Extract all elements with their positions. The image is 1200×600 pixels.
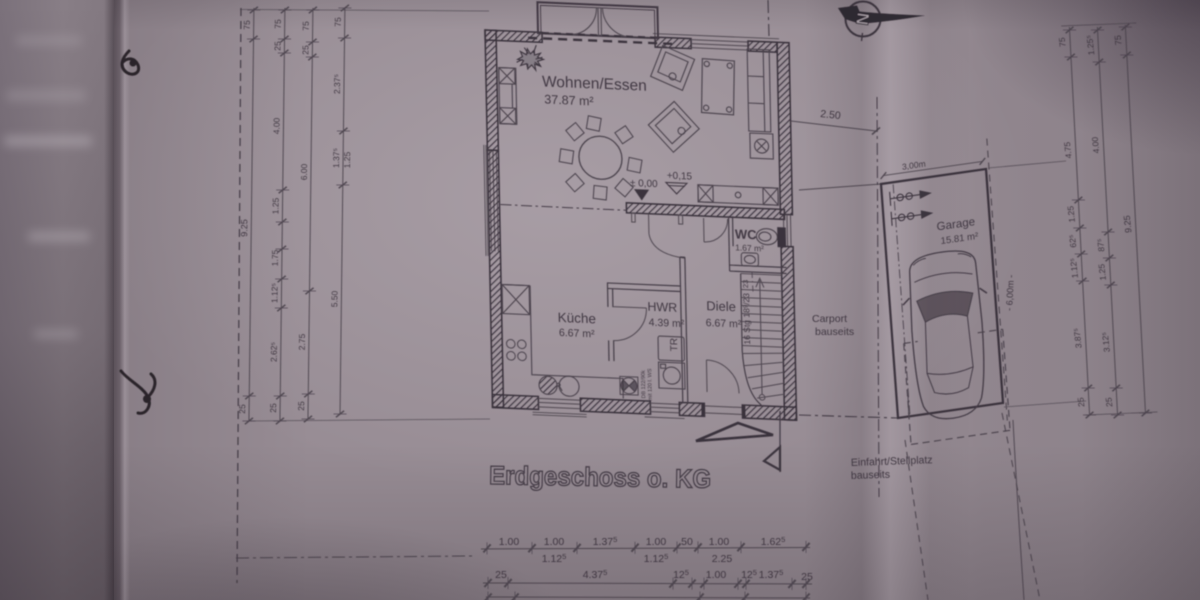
- svg-text:1.67 m²: 1.67 m²: [735, 242, 764, 253]
- svg-text:Küche: Küche: [558, 310, 597, 327]
- svg-text:Garage: Garage: [936, 216, 975, 233]
- svg-text:4.00: 4.00: [1090, 136, 1102, 153]
- svg-text:25: 25: [1075, 397, 1086, 407]
- svg-text:25: 25: [300, 45, 310, 55]
- svg-text:1.375: 1.375: [759, 568, 784, 581]
- svg-text:1.125: 1.125: [644, 552, 669, 565]
- svg-text:25: 25: [237, 404, 247, 414]
- svg-text:87⁵: 87⁵: [1095, 238, 1106, 251]
- svg-text:1.25: 1.25: [1065, 205, 1077, 222]
- svg-text:WC: WC: [735, 226, 758, 242]
- svg-text:25: 25: [495, 569, 507, 581]
- svg-text:1.75: 1.75: [270, 249, 280, 266]
- svg-text:Wohnen/Essen: Wohnen/Essen: [542, 73, 647, 94]
- svg-text:1.12⁵: 1.12⁵: [269, 283, 279, 303]
- svg-text:mit 120 l. WS: mit 120 l. WS: [647, 368, 654, 401]
- svg-text:bauseits: bauseits: [851, 469, 891, 482]
- svg-text:3.87⁵: 3.87⁵: [1072, 328, 1084, 349]
- svg-text:1.37⁵: 1.37⁵: [331, 148, 341, 168]
- svg-text:Erdgeschoss o. KG: Erdgeschoss o. KG: [489, 460, 711, 494]
- svg-text:75: 75: [273, 19, 283, 29]
- svg-text:Diele: Diele: [706, 298, 736, 314]
- svg-text:1.00: 1.00: [709, 536, 730, 548]
- svg-text:75: 75: [1113, 35, 1124, 46]
- svg-text:62⁵: 62⁵: [1067, 234, 1078, 247]
- svg-text:1.00: 1.00: [646, 536, 667, 548]
- svg-text:1.00: 1.00: [544, 536, 565, 548]
- svg-text:25: 25: [268, 403, 278, 413]
- svg-text:+0,15: +0,15: [667, 171, 693, 183]
- svg-text:4.375: 4.375: [583, 568, 608, 581]
- svg-text:DB 122/90k: DB 122/90k: [641, 370, 648, 399]
- svg-text:2.75: 2.75: [297, 333, 307, 350]
- svg-text:Einfahrt/Stellplatz: Einfahrt/Stellplatz: [851, 454, 933, 469]
- svg-text:TR: TR: [669, 338, 680, 352]
- svg-text:125: 125: [673, 568, 689, 581]
- svg-text:23: 23: [741, 280, 750, 288]
- svg-text:15.81 m²: 15.81 m²: [940, 231, 978, 247]
- svg-text:75: 75: [242, 20, 252, 30]
- svg-text:1.25: 1.25: [342, 151, 352, 168]
- svg-text:5.50: 5.50: [329, 290, 339, 307]
- svg-text:- 6,00m -: - 6,00m -: [1004, 275, 1016, 311]
- svg-text:1.625: 1.625: [761, 535, 786, 548]
- svg-text:75: 75: [301, 21, 311, 31]
- svg-text:bauseits: bauseits: [815, 326, 854, 338]
- svg-text:6.67 m²: 6.67 m²: [559, 327, 595, 341]
- svg-text:25: 25: [801, 571, 813, 583]
- svg-text:6.00: 6.00: [299, 163, 309, 180]
- svg-text:2.37⁵: 2.37⁵: [332, 74, 342, 94]
- svg-text:1.25⁵: 1.25⁵: [1084, 35, 1096, 56]
- svg-text:25: 25: [272, 41, 282, 51]
- svg-text:1.12⁵: 1.12⁵: [1068, 258, 1080, 279]
- svg-text:4.75: 4.75: [1062, 141, 1074, 158]
- svg-text:9.25: 9.25: [239, 219, 249, 237]
- svg-text:Carport: Carport: [812, 313, 847, 325]
- svg-text:N: N: [853, 12, 874, 27]
- svg-text:1.00: 1.00: [706, 569, 727, 581]
- svg-text:1.125: 1.125: [542, 552, 567, 565]
- svg-text:6.67 m²: 6.67 m²: [706, 317, 742, 331]
- svg-text:1.25: 1.25: [1096, 263, 1108, 280]
- svg-text:± 0,00: ± 0,00: [630, 178, 658, 190]
- svg-text:3.12⁵: 3.12⁵: [1100, 332, 1112, 353]
- svg-text:4.39 m²: 4.39 m²: [649, 317, 685, 331]
- svg-text:4.00: 4.00: [271, 117, 281, 134]
- svg-text:37.87 m²: 37.87 m²: [544, 92, 594, 108]
- svg-text:50: 50: [681, 536, 693, 548]
- svg-text:25: 25: [1103, 397, 1114, 407]
- svg-text:75: 75: [333, 17, 343, 27]
- svg-text:25: 25: [296, 401, 306, 411]
- svg-text:16 Stg 189/23: 16 Stg 189/23: [741, 293, 752, 345]
- svg-text:HWR: HWR: [647, 300, 677, 315]
- svg-text:125: 125: [741, 568, 757, 581]
- svg-text:1.375: 1.375: [593, 535, 618, 548]
- svg-text:2.50: 2.50: [820, 108, 842, 122]
- svg-text:1.25: 1.25: [270, 197, 280, 214]
- svg-text:2.25: 2.25: [712, 553, 733, 565]
- svg-text:75: 75: [1057, 37, 1068, 47]
- svg-text:2.62⁵: 2.62⁵: [269, 342, 279, 362]
- svg-text:9.25: 9.25: [1122, 215, 1134, 233]
- svg-text:1.00: 1.00: [499, 536, 520, 548]
